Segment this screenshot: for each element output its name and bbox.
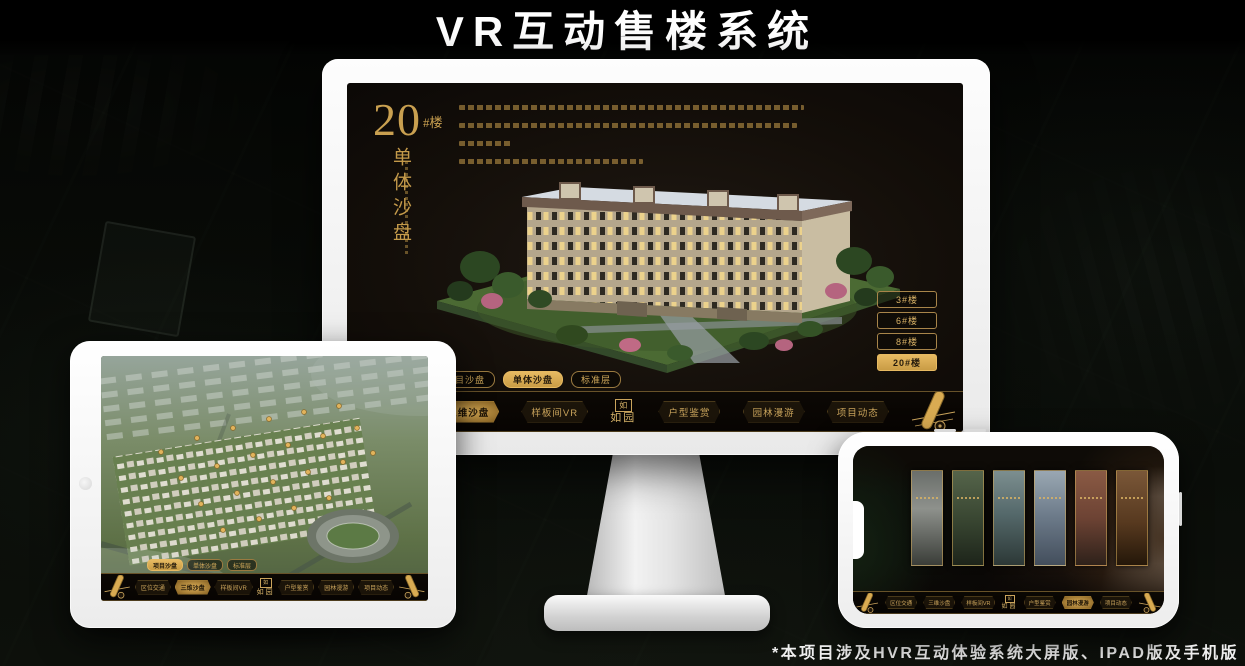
gallery-panel[interactable] [952,470,984,566]
tab-standard-floor[interactable]: 标准层 [571,371,621,388]
scroll-menu-icon[interactable] [856,593,879,613]
heading-vertical-title: 单体沙盘 [387,147,414,247]
nav-item-showroom-vr[interactable]: 样板间VR [961,596,995,609]
nav-item-project-news[interactable]: 项目动态 [827,401,889,423]
ipad-bottom-nav: 区位交通 三维沙盘 样板间VR 如 如园 户型鉴赏 园林漫游 项目动态 [101,573,428,601]
gallery-panel[interactable] [1075,470,1107,566]
building-number-suffix: #楼 [423,115,443,130]
nav-item-floorplan[interactable]: 户型鉴赏 [278,580,314,595]
brand-seal-icon: 如 [1005,595,1015,603]
brand-logo: 如 如园 [610,399,636,424]
phone-power-button [1179,492,1182,526]
monitor-stand-base [544,595,770,631]
phone-device: 区位交通 三维沙盘 样板间VR 如 如园 户型鉴赏 园林漫游 项目动态 [838,432,1179,628]
gallery-panel[interactable] [993,470,1025,566]
ipad-bezel: 项目沙盘 单体沙盘 标准层 区位交通 三维沙盘 样板间VR 如 如园 [70,341,456,628]
phone-volume-button [934,429,956,432]
intro-text-line [459,123,797,128]
nav-item-garden-roam[interactable]: 园林漫游 [743,401,805,423]
ipad-tab-standard-floor[interactable]: 标准层 [227,559,257,571]
monitor-stand-neck [586,455,726,601]
ipad-camera-icon [79,477,92,490]
intro-text-line [459,105,804,110]
brand-logo: 如 如园 [257,578,275,596]
floor-button-8[interactable]: 8#楼 [877,333,937,350]
gallery-panel-row [911,470,1148,566]
nav-item-3d-sandbox[interactable]: 三维沙盘 [175,580,211,595]
background-buildings-right [975,140,1245,440]
scroll-menu-icon[interactable] [398,575,425,599]
ipad-sub-tabs: 项目沙盘 单体沙盘 标准层 [147,559,257,571]
phone-bezel: 区位交通 三维沙盘 样板间VR 如 如园 户型鉴赏 园林漫游 项目动态 [838,432,1179,628]
ipad-tab-project-sandbox[interactable]: 项目沙盘 [147,559,183,571]
gallery-panel[interactable] [1034,470,1066,566]
brand-seal-icon: 如 [260,578,272,588]
nav-item-project-news[interactable]: 项目动态 [1100,596,1132,609]
gallery-panel[interactable] [911,470,943,566]
scroll-menu-icon[interactable] [911,392,957,432]
floor-button-3[interactable]: 3#楼 [877,291,937,308]
background-signboard [88,221,196,337]
ipad-tab-single-sandbox[interactable]: 单体沙盘 [187,559,223,571]
ipad-device: 项目沙盘 单体沙盘 标准层 区位交通 三维沙盘 样板间VR 如 如园 [70,341,456,628]
floor-button-20[interactable]: 20#楼 [877,354,937,371]
floor-button-6[interactable]: 6#楼 [877,312,937,329]
tab-single-sandbox[interactable]: 单体沙盘 [503,371,563,388]
nav-item-showroom-vr[interactable]: 样板间VR [214,580,252,595]
brand-logo-text: 如园 [610,413,636,424]
nav-item-location[interactable]: 区位交通 [135,580,171,595]
floor-button-group: 3#楼 6#楼 8#楼 20#楼 [877,291,937,371]
brand-logo: 如 如园 [1002,595,1018,610]
phone-bottom-nav: 区位交通 三维沙盘 样板间VR 如 如园 户型鉴赏 园林漫游 项目动态 [853,591,1164,614]
page-title: VR互动售楼系统 [0,0,1245,56]
brand-logo-text: 如园 [1002,604,1018,610]
nav-item-location[interactable]: 区位交通 [885,596,917,609]
nav-item-showroom-vr[interactable]: 样板间VR [521,401,588,423]
footnote-text: *本项目涉及HVR互动体验系统大屏版、IPAD版及手机版 [772,639,1239,663]
nav-item-garden-roam[interactable]: 园林漫游 [318,580,354,595]
gallery-panel[interactable] [1116,470,1148,566]
promo-canvas: VR互动售楼系统 20#楼 单体沙盘 [0,0,1245,666]
nav-item-garden-roam[interactable]: 园林漫游 [1062,596,1094,609]
phone-notch [853,501,864,559]
intro-text-line [459,141,513,146]
building-number: 20 [373,94,421,145]
heading-english-caption [405,161,408,257]
background-buildings-topleft [0,55,260,185]
nav-item-3d-sandbox[interactable]: 三维沙盘 [923,596,955,609]
nav-item-project-news[interactable]: 项目动态 [358,580,394,595]
ipad-screen: 项目沙盘 单体沙盘 标准层 区位交通 三维沙盘 样板间VR 如 如园 [101,356,428,601]
nav-item-floorplan[interactable]: 户型鉴赏 [1024,596,1056,609]
nav-item-floorplan[interactable]: 户型鉴赏 [658,401,720,423]
brand-seal-icon: 如 [615,399,632,412]
brand-logo-text: 如园 [257,589,275,596]
phone-volume-button [964,429,986,432]
scroll-menu-icon[interactable] [104,575,131,599]
building-model-image [422,149,912,379]
phone-screen: 区位交通 三维沙盘 样板间VR 如 如园 户型鉴赏 园林漫游 项目动态 [853,446,1164,614]
sandbox-sub-tabs: 项目沙盘 单体沙盘 标准层 [435,371,621,388]
scroll-menu-icon[interactable] [1138,593,1161,613]
